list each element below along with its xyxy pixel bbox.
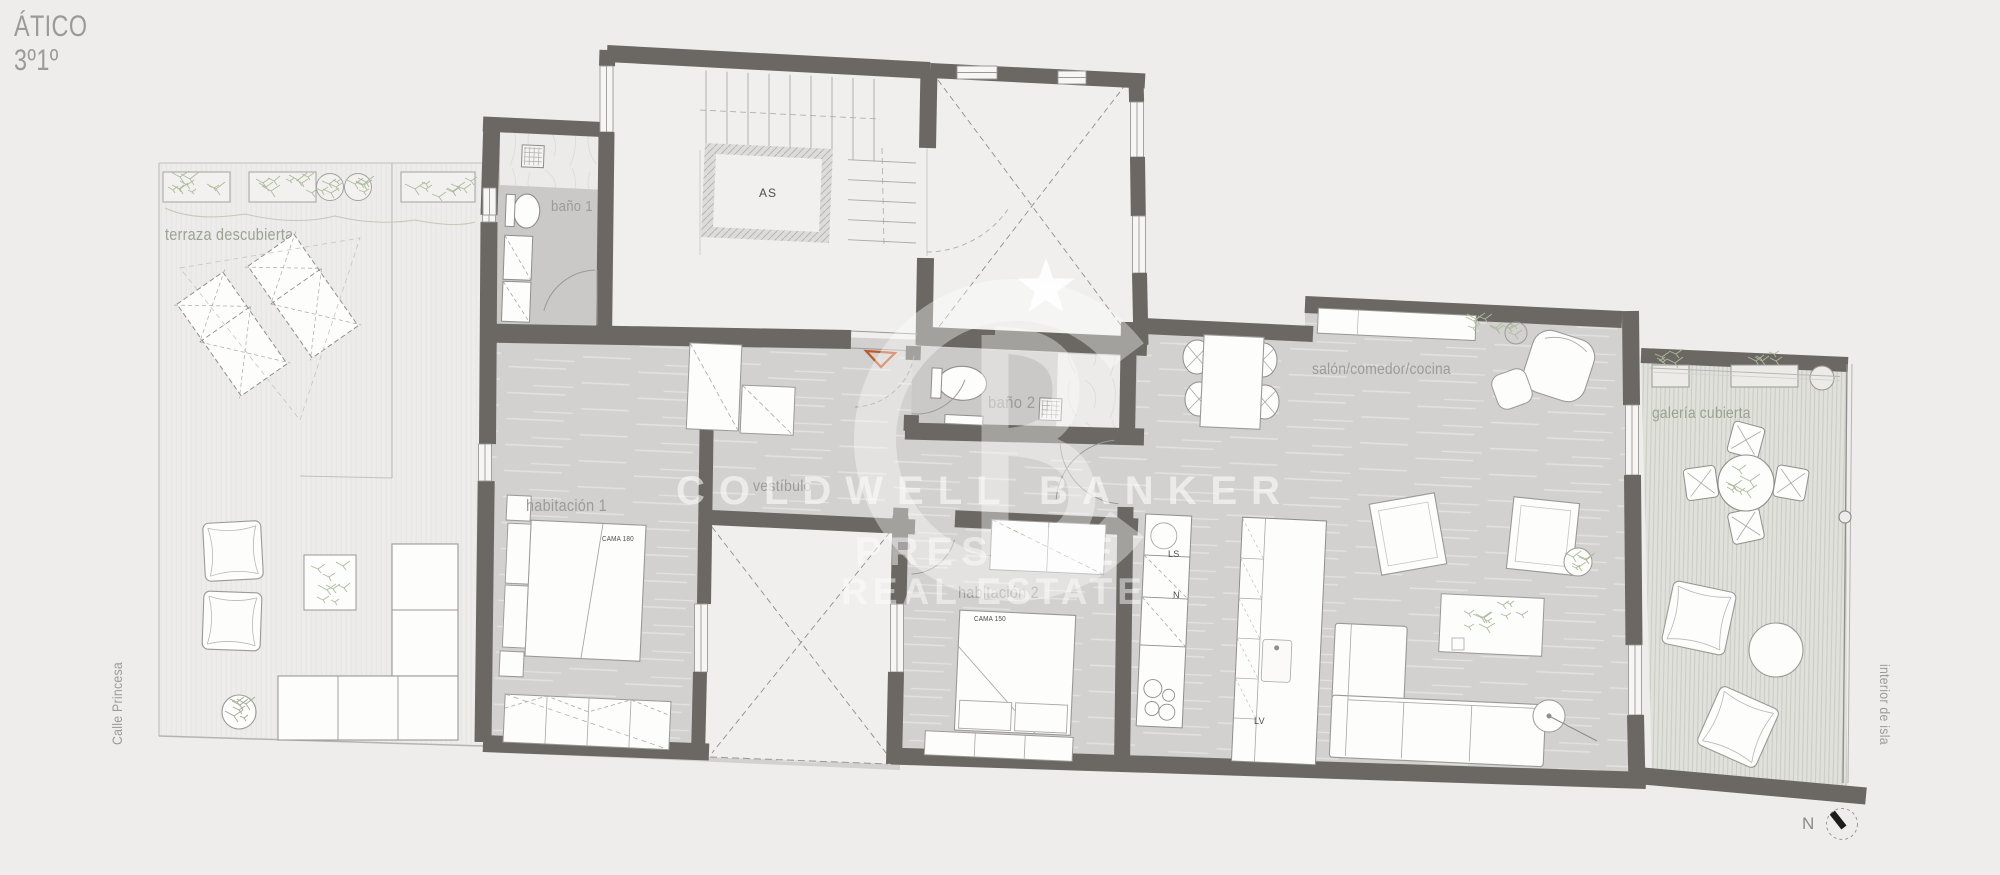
svg-text:CAMA 180: CAMA 180: [602, 536, 634, 544]
svg-text:baño 1: baño 1: [551, 197, 593, 214]
svg-text:salón/comedor/cocina: salón/comedor/cocina: [1312, 360, 1451, 378]
svg-text:AS: AS: [759, 186, 777, 200]
svg-text:galería cubierta: galería cubierta: [1652, 404, 1751, 422]
svg-text:Calle Princesa: Calle Princesa: [109, 662, 125, 745]
svg-text:N: N: [1802, 814, 1814, 833]
svg-text:ÁTICO: ÁTICO: [14, 9, 87, 42]
svg-text:interior de isla: interior de isla: [1877, 664, 1893, 745]
svg-text:habitación 1: habitación 1: [526, 497, 607, 515]
svg-text:CAMA 150: CAMA 150: [974, 616, 1006, 624]
svg-text:3º1º: 3º1º: [14, 43, 59, 76]
svg-text:N: N: [1173, 590, 1180, 600]
svg-text:LV: LV: [1254, 716, 1265, 726]
svg-text:LS: LS: [1168, 549, 1180, 559]
svg-text:terraza descubierta: terraza descubierta: [165, 226, 293, 244]
